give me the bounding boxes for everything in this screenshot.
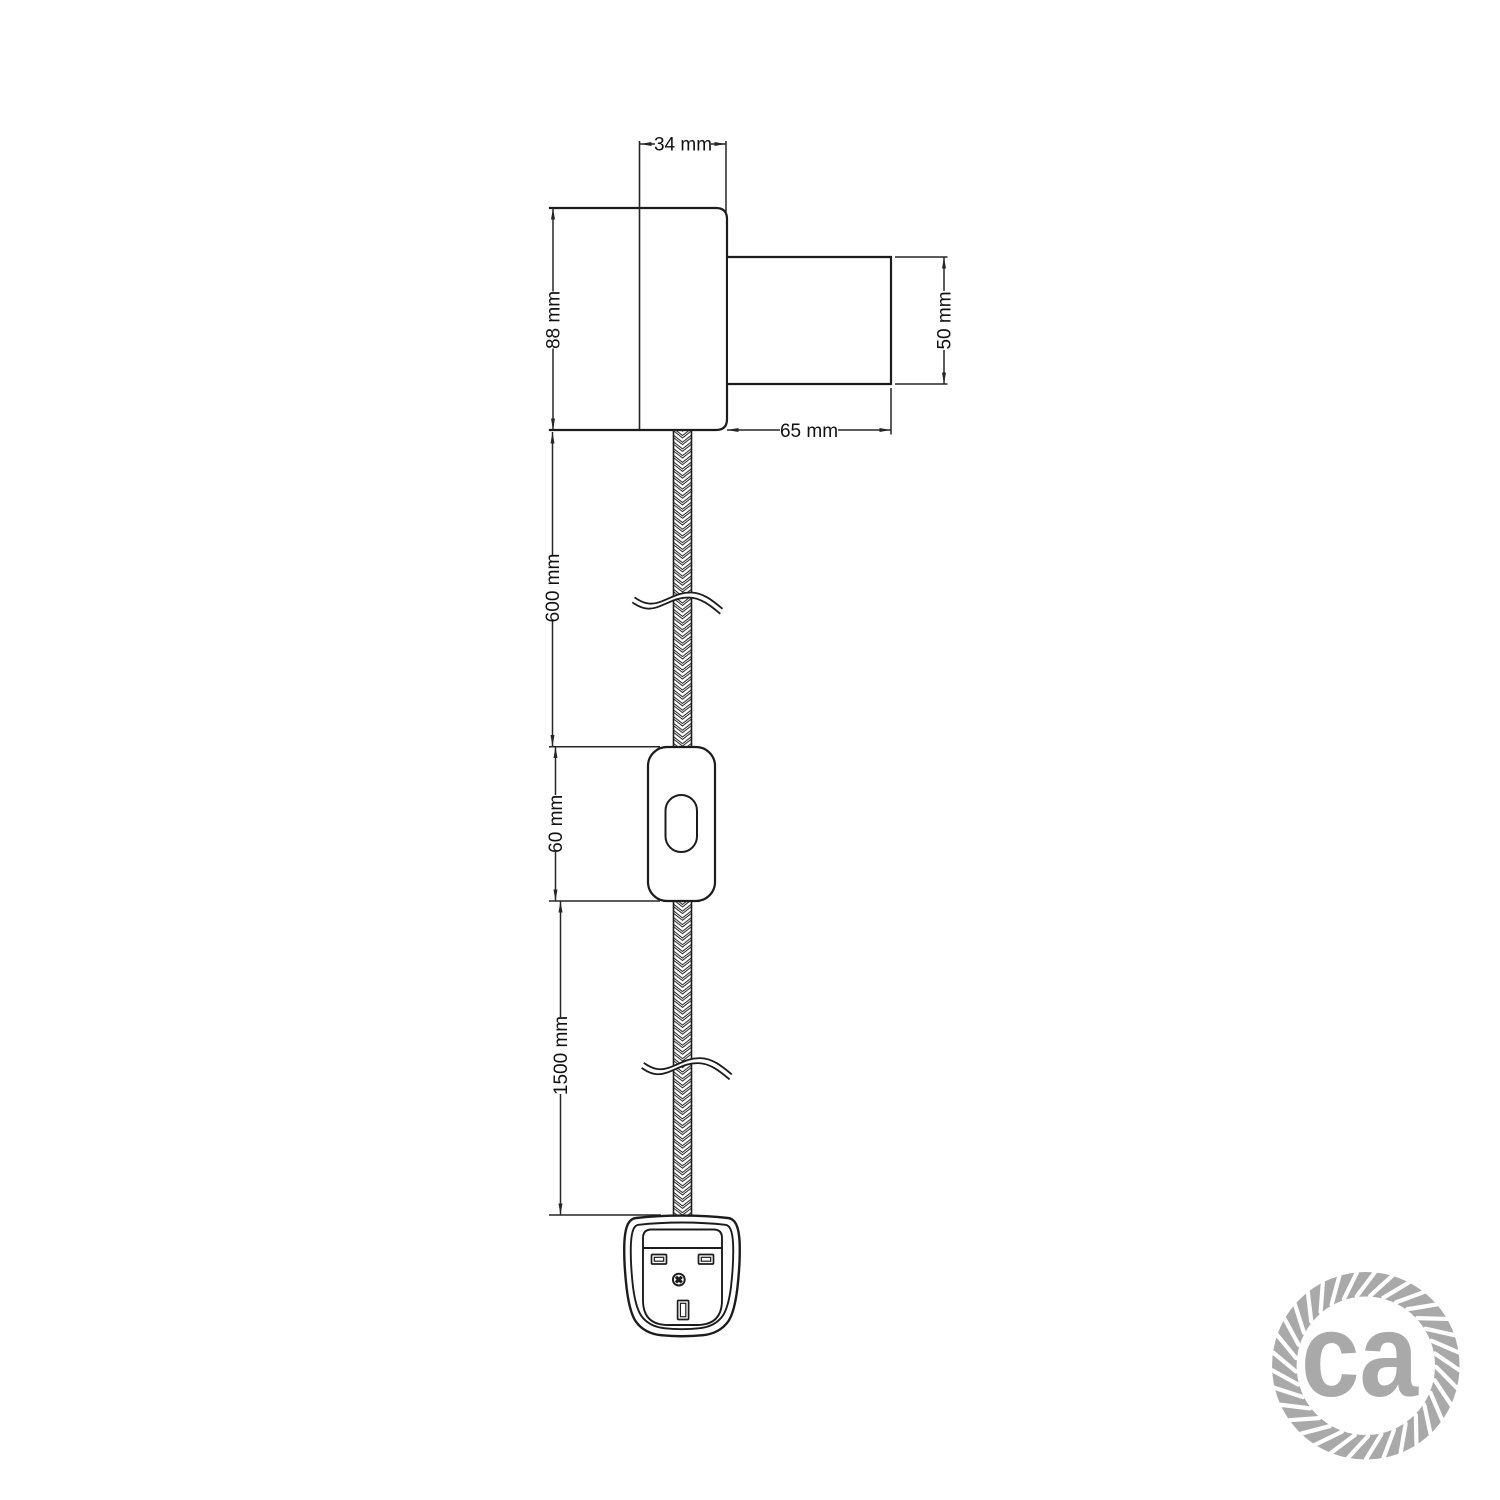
svg-text:34 mm: 34 mm bbox=[654, 135, 712, 156]
svg-text:88 mm: 88 mm bbox=[544, 291, 565, 349]
svg-text:ca: ca bbox=[1301, 1289, 1419, 1422]
svg-text:50 mm: 50 mm bbox=[935, 291, 956, 349]
svg-text:1500 mm: 1500 mm bbox=[551, 1016, 572, 1095]
svg-text:60 mm: 60 mm bbox=[546, 795, 567, 853]
svg-text:600 mm: 600 mm bbox=[543, 554, 564, 623]
svg-text:65 mm: 65 mm bbox=[780, 421, 838, 442]
